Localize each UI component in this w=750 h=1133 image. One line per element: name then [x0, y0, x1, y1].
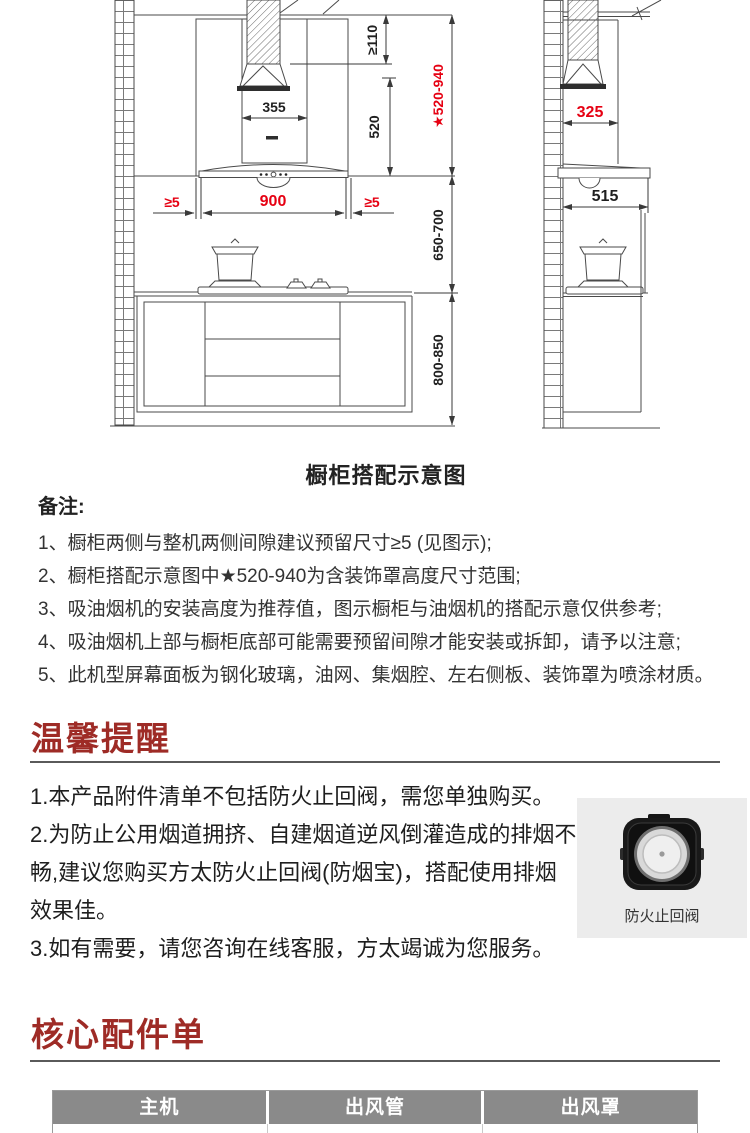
fire-check-valve-caption: 防火止回阀: [577, 905, 747, 926]
column-header-air-duct: 出风管: [269, 1091, 482, 1124]
reminder-body: 1.本产品附件清单不包括防火止回阀，需您单独购买。 2.为防止公用烟道拥挤、自建…: [30, 778, 578, 968]
accessories-rule: [30, 1060, 720, 1062]
dim-chimney-height: 520: [366, 115, 382, 139]
cooktop-side: [563, 239, 648, 297]
column-header-air-outlet-cover: 出风罩: [484, 1091, 697, 1124]
fire-check-valve-card: 防火止回阀: [577, 798, 747, 938]
note-item-3: 3、吸油烟机的安装高度为推荐值，图示橱柜与油烟机的搭配示意仅供参考;: [38, 593, 738, 626]
accessories-table-header: 主机 出风管 出风罩: [53, 1091, 697, 1124]
dim-side-chimney-width: 325: [577, 104, 604, 121]
fire-check-valve-image: [614, 812, 710, 900]
side-view-dimension-labels: 325 515: [577, 104, 619, 205]
reminder-line-1: 1.本产品附件清单不包括防火止回阀，需您单独购买。: [30, 778, 578, 816]
dim-top-clearance: ≥110: [364, 25, 380, 55]
reminder-line-2: 2.为防止公用烟道拥挤、自建烟道逆风倒灌造成的排烟不畅,建议您购买方太防火止回阀…: [30, 816, 578, 930]
cabinet-installation-diagram: 355 ≥5 900 ≥5 ≥110 520 ★520-940 650-700 …: [0, 0, 750, 455]
range-hood-side: [558, 164, 650, 188]
notes-section: 备注: 1、橱柜两侧与整机两侧间隙建议预留尺寸≥5 (见图示); 2、橱柜搭配示…: [38, 490, 738, 692]
accessories-table-body-row: [53, 1124, 697, 1133]
dim-hood-depth: 515: [592, 188, 619, 205]
exhaust-duct-front: [247, 0, 280, 64]
note-item-4: 4、吸油烟机上部与橱柜底部可能需要预留间隙才能安装或拆卸，请予以注意;: [38, 626, 738, 659]
diagram-title: 橱柜搭配示意图: [0, 458, 750, 490]
wall-side: [544, 0, 563, 428]
column-header-main-unit: 主机: [53, 1091, 266, 1124]
reminder-heading: 温馨提醒: [31, 712, 171, 760]
exhaust-duct-side: [568, 0, 598, 60]
side-view: [542, 0, 661, 428]
dim-chimney-width: 355: [262, 99, 286, 115]
note-item-2: 2、橱柜搭配示意图中★520-940为含装饰罩高度尺寸范围;: [38, 560, 738, 593]
cooktop-front: [134, 239, 412, 296]
accessories-table: 主机 出风管 出风罩: [52, 1090, 698, 1133]
wall-front: [115, 0, 134, 425]
product-detail-page: 355 ≥5 900 ≥5 ≥110 520 ★520-940 650-700 …: [0, 0, 750, 1133]
accessories-heading: 核心配件单: [31, 1008, 206, 1056]
notes-label: 备注:: [38, 490, 738, 519]
reminder-line-3: 3.如有需要，请您咨询在线客服，方太竭诚为您服务。: [30, 930, 578, 968]
base-cabinet-front: [137, 296, 412, 412]
dim-counter-height: 800-850: [430, 334, 446, 386]
check-valve-side: [560, 60, 606, 89]
reminder-rule: [30, 761, 720, 763]
note-item-5: 5、此机型屏幕面板为钢化玻璃，油网、集烟腔、左右侧板、装饰罩为喷涂材质。: [38, 659, 738, 692]
dim-hood-to-counter: 650-700: [430, 209, 446, 261]
dim-gap-right: ≥5: [364, 194, 380, 210]
dim-star-range: ★520-940: [430, 64, 446, 128]
note-item-1: 1、橱柜两侧与整机两侧间隙建议预留尺寸≥5 (见图示);: [38, 527, 738, 560]
dim-hood-width: 900: [260, 193, 287, 210]
range-hood-front: [199, 165, 348, 188]
dim-gap-left: ≥5: [164, 194, 180, 210]
